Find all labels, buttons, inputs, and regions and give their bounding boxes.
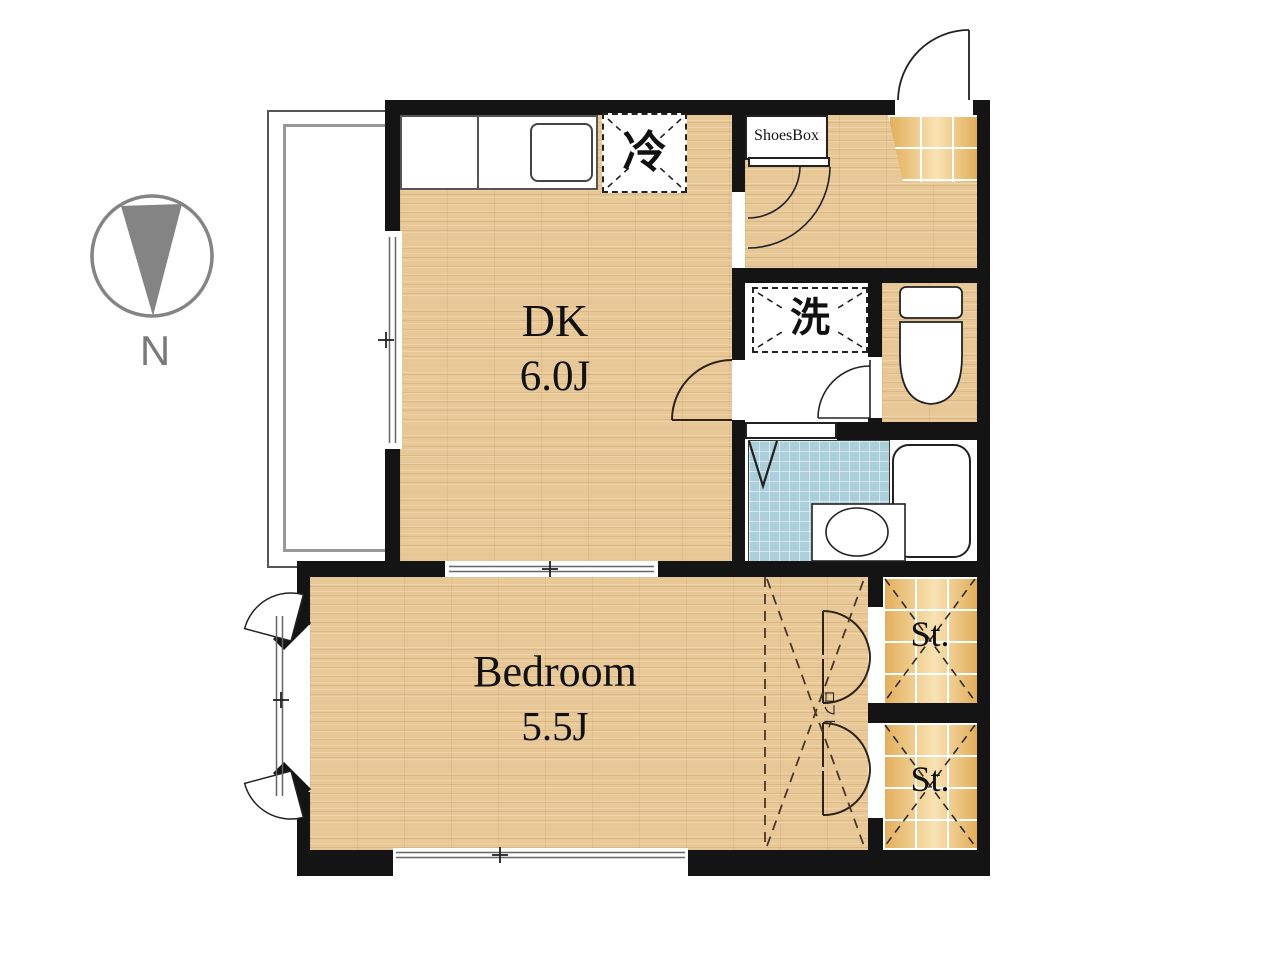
wall xyxy=(868,818,883,850)
entry-door-icon xyxy=(898,30,969,100)
north-label: N xyxy=(127,328,183,373)
bedroom-size: 5.5J xyxy=(415,704,695,748)
compass-icon xyxy=(92,196,212,316)
balcony-inner-rail xyxy=(283,124,390,552)
entrance-tile xyxy=(888,115,977,182)
wall xyxy=(732,268,990,283)
washer-label: 洗 xyxy=(752,297,868,340)
refrigerator-label: 冷 xyxy=(602,129,687,177)
dk-room-label: DK 6.0J xyxy=(430,296,680,400)
hall-door-leaf xyxy=(748,157,830,167)
closet-bottom-opening xyxy=(868,723,883,818)
partition-sliding-door xyxy=(445,561,658,577)
wall xyxy=(868,577,883,607)
toilet-floor xyxy=(882,283,977,422)
bedroom-name: Bedroom xyxy=(415,648,695,696)
bath-folding-door xyxy=(745,422,837,439)
storage-bottom-label: St. xyxy=(883,760,977,799)
bathroom-floor xyxy=(748,440,890,562)
entry-door-opening xyxy=(895,100,973,115)
dk-size: 6.0J xyxy=(430,354,680,400)
wall xyxy=(977,100,990,876)
loft-label: ロフト xyxy=(821,678,835,742)
closet-top-opening xyxy=(868,607,883,703)
wall xyxy=(732,113,745,192)
bathtub-icon xyxy=(893,445,970,557)
dk-window xyxy=(383,231,402,449)
kitchen-sink-icon xyxy=(530,123,593,182)
bedroom-bay-window xyxy=(271,612,292,800)
shoesbox-label: ShoesBox xyxy=(745,127,828,144)
dk-name: DK xyxy=(430,296,680,346)
counter-divider xyxy=(477,117,479,188)
wall xyxy=(837,422,977,440)
floor-plan: N DK 6.0J Bedroom 5.5J St. St. ロフト Shoes… xyxy=(0,0,1280,960)
toilet-door-opening xyxy=(868,357,882,418)
storage-top-label: St. xyxy=(883,615,977,654)
bedroom-left-opening xyxy=(297,625,310,792)
washroom-door-opening xyxy=(732,360,745,420)
bedroom-bottom-window xyxy=(393,848,688,876)
wall xyxy=(868,703,977,723)
bedroom-room-label: Bedroom 5.5J xyxy=(415,648,695,748)
hall-door-opening xyxy=(732,192,745,268)
wall xyxy=(732,283,745,568)
